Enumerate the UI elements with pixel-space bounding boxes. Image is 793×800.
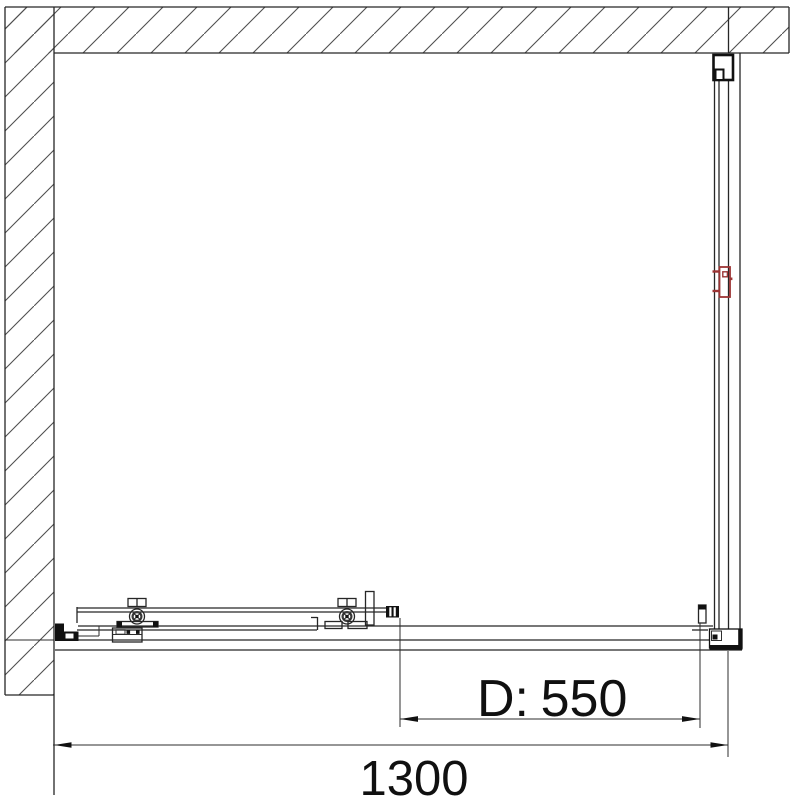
door-handle-cap: [386, 606, 399, 618]
door-dimension-label: D:: [477, 670, 529, 728]
door-roller: [128, 599, 146, 625]
door-dimension-value: 550: [541, 670, 628, 728]
bottom-track-assembly: [55, 606, 742, 650]
arrowhead-left: [400, 716, 418, 722]
roller-carriage-left: [113, 622, 159, 643]
arrowhead-right: [682, 716, 700, 722]
glass-clamp-pin: [730, 278, 733, 281]
walls: [5, 7, 789, 795]
cad-canvas: D: 550 1300: [0, 0, 793, 800]
left-wall-hatch: [5, 7, 54, 695]
top-wall-hatch: [5, 7, 789, 53]
corner-bracket-bottom-right: [699, 605, 743, 650]
fixed-side-panel: [713, 53, 741, 650]
total-width-value: 1300: [359, 752, 468, 800]
door-roller-right: [338, 599, 356, 625]
arrowhead-right: [711, 742, 729, 748]
shower-enclosure-plan-drawing: D: 550 1300: [0, 0, 793, 800]
dimension-door-opening: D: 550: [400, 618, 700, 728]
arrowhead-left: [54, 742, 72, 748]
